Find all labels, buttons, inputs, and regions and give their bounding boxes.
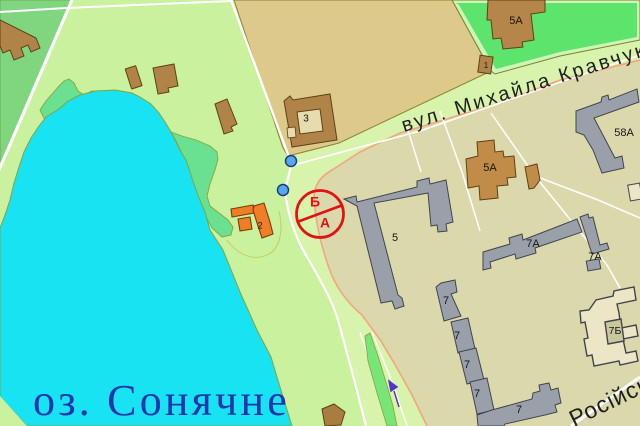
- svg-text:7: 7: [454, 330, 460, 342]
- svg-text:Б: Б: [310, 194, 320, 210]
- svg-text:7: 7: [516, 404, 522, 416]
- svg-text:5: 5: [392, 232, 398, 244]
- svg-text:5А: 5А: [509, 15, 523, 27]
- svg-text:7: 7: [464, 359, 470, 371]
- svg-text:А: А: [320, 215, 330, 231]
- svg-text:5А: 5А: [483, 162, 497, 174]
- svg-text:7А: 7А: [588, 251, 602, 263]
- svg-text:1: 1: [484, 61, 489, 70]
- svg-text:2: 2: [257, 220, 262, 230]
- svg-text:оз. Сонячне: оз. Сонячне: [33, 376, 290, 425]
- svg-text:7: 7: [474, 388, 480, 400]
- svg-text:7А: 7А: [526, 238, 540, 250]
- svg-text:7: 7: [443, 295, 449, 307]
- svg-text:58А: 58А: [614, 127, 634, 139]
- svg-text:7Б: 7Б: [609, 325, 622, 337]
- svg-text:3: 3: [303, 114, 309, 125]
